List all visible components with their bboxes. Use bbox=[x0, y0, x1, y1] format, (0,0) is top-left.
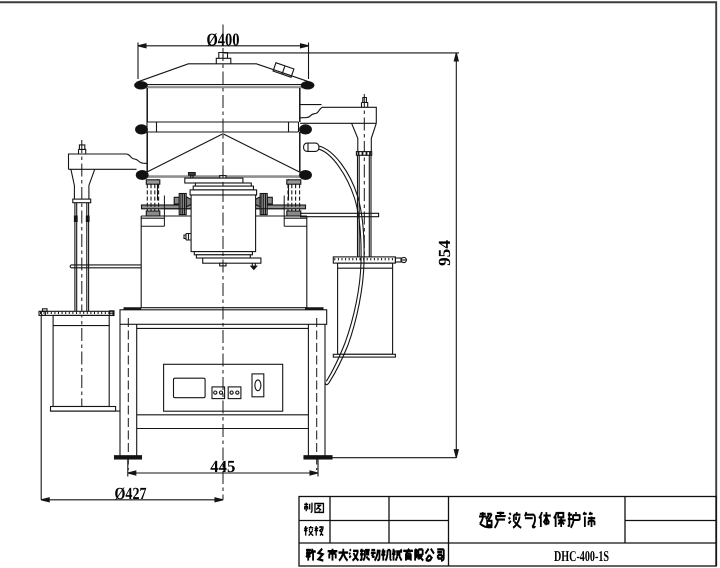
svg-text:DHC-400-1S: DHC-400-1S bbox=[554, 549, 609, 565]
svg-text:Ø427: Ø427 bbox=[115, 484, 147, 503]
svg-text:954: 954 bbox=[435, 239, 454, 266]
